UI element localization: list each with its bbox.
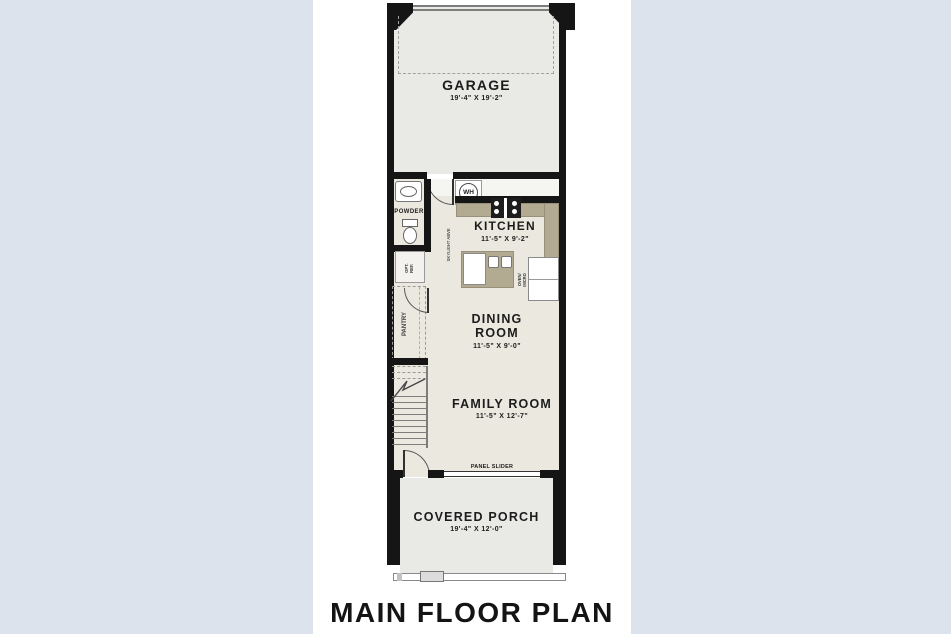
plan-title: MAIN FLOOR PLAN xyxy=(313,597,631,629)
garage-door-track-dashed xyxy=(398,16,554,74)
covered-porch-label: COVERED PORCH 19'-4" X 12'-0" xyxy=(400,510,553,534)
pantry-bottom-wall xyxy=(387,358,428,365)
toilet-tank xyxy=(402,219,418,227)
oven-micro-cabinet xyxy=(528,257,559,301)
stove-divider xyxy=(504,198,507,218)
room-name: GARAGE xyxy=(391,77,562,93)
room-dims: 11'-5" X 9'-2" xyxy=(455,236,555,244)
porch-right-wall xyxy=(553,478,566,565)
porch-left-wall xyxy=(387,478,400,565)
room-name: COVERED PORCH xyxy=(400,510,553,524)
stove xyxy=(491,198,521,218)
room-name: KITCHEN xyxy=(455,220,555,234)
room-dims: 19'-4" X 19'-2" xyxy=(391,95,562,103)
room-dims: 11'-5" X 12'-7" xyxy=(432,413,572,421)
pantry-door-leaf xyxy=(427,288,429,313)
opt-closet-label: OPT. REF. xyxy=(405,259,415,278)
railing-post xyxy=(397,573,402,581)
rear-wall-segment xyxy=(387,470,403,478)
family-room-label: FAMILY ROOM 11'-5" X 12'-7" xyxy=(432,397,572,421)
island-dishwasher xyxy=(463,253,486,285)
dining-room-label: DINING ROOM 11'-5" X 9'-0" xyxy=(432,312,562,351)
stair-break-line xyxy=(390,378,428,402)
room-dims: 11'-5" X 9'-0" xyxy=(432,343,562,351)
skylight-label: SKYLIGHT ABVE xyxy=(447,228,452,262)
sink-basin xyxy=(400,186,417,197)
island-sink-basin-right xyxy=(501,256,512,268)
porch-gate xyxy=(420,571,444,582)
cabinet-divider xyxy=(529,279,558,280)
room-name: DINING xyxy=(432,312,562,326)
oven-micro-label: OVEN/ MICRO xyxy=(518,265,528,295)
powder-sink xyxy=(395,181,422,202)
panel-slider-door xyxy=(444,471,540,477)
garage-entry-door-leaf xyxy=(452,179,454,205)
kitchen-label: KITCHEN 11'-5" X 9'-2" xyxy=(455,220,555,244)
porch-railing xyxy=(393,573,566,581)
front-door-leaf xyxy=(403,450,405,477)
garage-door-line xyxy=(413,5,549,7)
garage-bottom-wall-left xyxy=(387,172,427,179)
room-name: FAMILY ROOM xyxy=(432,397,572,411)
floor-plan-image: GARAGE 19'-4" X 19'-2" WH POWDER OPT. RE… xyxy=(0,0,951,634)
rear-wall-segment xyxy=(428,470,444,478)
opt-closet: OPT. REF. xyxy=(395,251,425,283)
panel-slider-label: PANEL SLIDER xyxy=(455,464,530,470)
rear-wall-segment xyxy=(540,470,566,478)
garage-label: GARAGE 19'-4" X 19'-2" xyxy=(391,77,562,103)
island-sink-basin-left xyxy=(488,256,499,268)
room-dims: 19'-4" X 12'-0" xyxy=(400,526,553,534)
garage-bottom-wall-right xyxy=(453,172,566,179)
pantry-label: PANTRY xyxy=(402,300,409,348)
room-name: ROOM xyxy=(432,326,562,340)
garage-door-line xyxy=(413,9,549,11)
powder-label: POWDER xyxy=(387,209,431,216)
toilet-bowl xyxy=(403,227,417,244)
